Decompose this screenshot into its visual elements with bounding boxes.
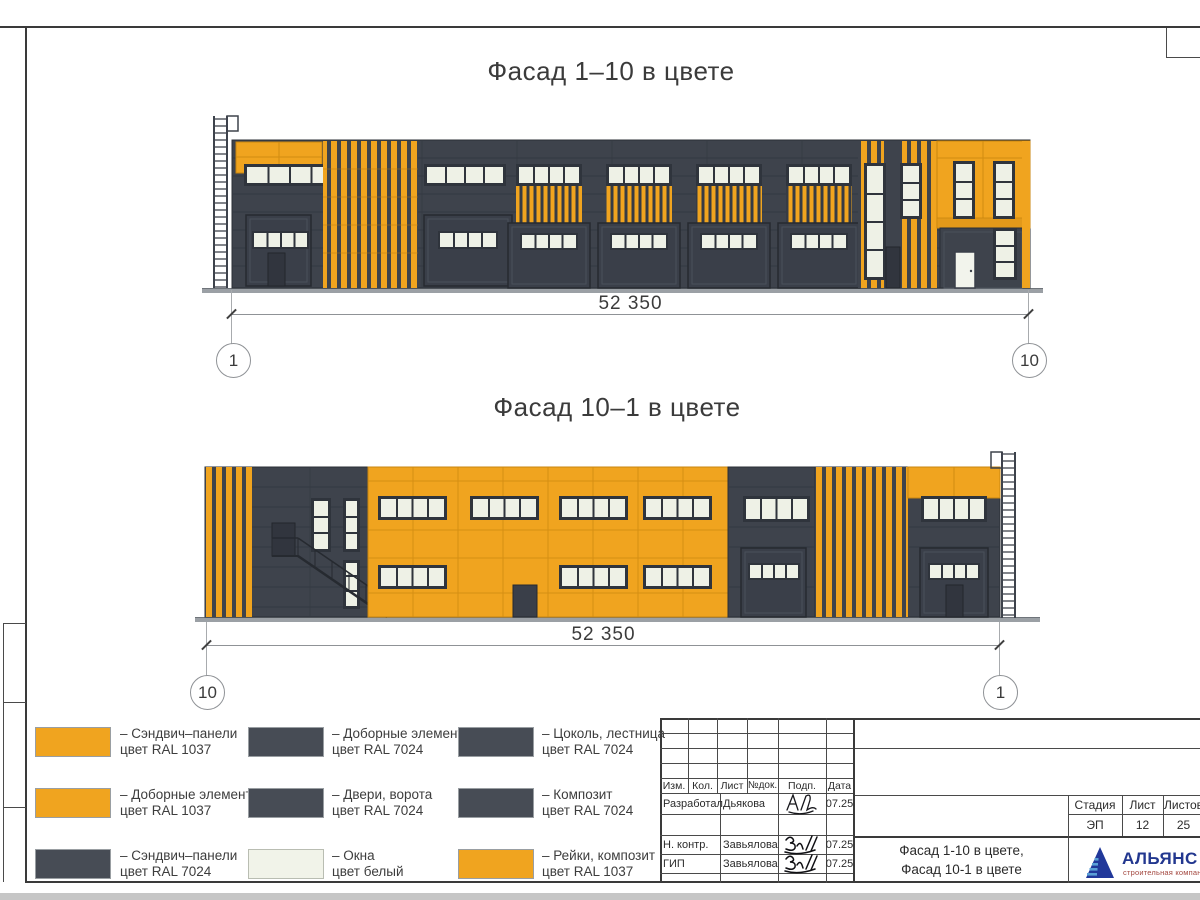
date-1: 07.25 (826, 793, 853, 814)
facade-10-1-drawing (195, 448, 1040, 628)
axis-marker-10: 10 (190, 675, 225, 710)
legend-label: – Сэндвич–панели (120, 848, 237, 865)
drawing-sheet: Фасад 1–10 в цвете Фасад 10–1 в цвете (0, 0, 1200, 893)
slat-window-section (858, 141, 937, 288)
frame-top (0, 26, 1200, 28)
legend-label: – Рейки, композит (542, 848, 655, 865)
color-swatch (248, 849, 324, 879)
margin-line-h3 (3, 807, 26, 808)
legend-label: – Цоколь, лестница (542, 726, 665, 743)
format-box-line-h (1166, 57, 1200, 58)
gate-1 (246, 215, 311, 286)
window-strip (244, 164, 336, 186)
format-box-line-v (1166, 28, 1167, 58)
margin-line-h1 (3, 623, 26, 624)
legend-label: – Сэндвич–панели (120, 726, 237, 743)
margin-line-h2 (3, 702, 26, 703)
orange-main-section (368, 467, 728, 617)
color-swatch (458, 788, 534, 818)
legend-label: – Композит (542, 787, 633, 804)
color-swatch (458, 727, 534, 757)
alliance-logo-subtext: строительная компания (1123, 868, 1200, 877)
legend-label: цвет RAL 1037 (120, 742, 237, 759)
date-3: 07.25 (826, 854, 853, 873)
axis-marker-1: 1 (216, 343, 251, 378)
sheets-value: 25 (1163, 814, 1200, 836)
sheet-value: 12 (1122, 814, 1163, 836)
dimension-value-2: 52 350 (207, 624, 1000, 646)
alliance-logo-icon (1084, 846, 1116, 880)
date-2: 07.25 (826, 835, 853, 854)
legend-label: цвет белый (332, 864, 404, 881)
role-razrabotal: Разработал (663, 793, 719, 814)
legend-label: цвет RAL 1037 (120, 803, 261, 820)
facade1-title: Фасад 1–10 в цвете (311, 56, 911, 87)
col-data: Дата (826, 778, 853, 793)
sheets-label: Листов (1163, 795, 1200, 814)
signature-1 (781, 791, 825, 815)
legend-label: цвет RAL 7024 (332, 742, 473, 759)
facade2-title: Фасад 10–1 в цвете (317, 392, 917, 423)
facade-1-10-drawing (200, 106, 1045, 301)
doc-title-line1: Фасад 1-10 в цвете, (899, 842, 1023, 861)
dimension-value-1: 52 350 (232, 293, 1029, 315)
orange-slats-block (323, 141, 418, 288)
entrance-door-white (955, 252, 975, 288)
col-ndok: №док. (747, 778, 778, 793)
color-swatch (35, 788, 111, 818)
name-dyakova: Дьякова (723, 793, 777, 814)
legend-label: цвет RAL 7024 (332, 803, 432, 820)
role-gip: ГИП (663, 854, 719, 873)
color-swatch (35, 727, 111, 757)
door-dark (513, 585, 537, 617)
stage-label: Стадия (1068, 795, 1122, 814)
signature-3 (781, 852, 825, 874)
orange-slats-block (815, 467, 908, 617)
color-swatch (248, 788, 324, 818)
legend-label: цвет RAL 7024 (120, 864, 237, 881)
role-nkontr: Н. контр. (663, 835, 719, 854)
name-zavyalova-2: Завьялова (723, 854, 777, 873)
doc-title: Фасад 1-10 в цвете, Фасад 10-1 в цвете (855, 838, 1068, 883)
doc-title-line2: Фасад 10-1 в цвете (901, 861, 1022, 880)
legend-label: цвет RAL 1037 (542, 864, 655, 881)
color-swatch (35, 849, 111, 879)
orange-end-block (937, 141, 1030, 288)
legend-label: цвет RAL 7024 (542, 742, 665, 759)
margin-line-v (3, 623, 4, 882)
legend-label: – Окна (332, 848, 404, 865)
dark-gate-section (728, 467, 815, 617)
frame-left (25, 26, 27, 883)
sheet-label: Лист (1122, 795, 1163, 814)
axis-marker-10: 10 (1012, 343, 1047, 378)
col-kol: Кол. (688, 778, 717, 793)
bay2 (424, 164, 512, 286)
col-list: Лист (717, 778, 747, 793)
name-zavyalova-1: Завьялова (723, 835, 777, 854)
legend-label: – Двери, ворота (332, 787, 432, 804)
alliance-logo-text: АЛЬЯНС (1122, 849, 1198, 869)
axis-marker-1: 1 (983, 675, 1018, 710)
legend-label: – Доборные элементы (332, 726, 473, 743)
orange-slats-left (205, 467, 252, 617)
legend-label: – Доборные элементы (120, 787, 261, 804)
legend-label: цвет RAL 7024 (542, 803, 633, 820)
color-swatch (248, 727, 324, 757)
color-swatch (458, 849, 534, 879)
stage-value: ЭП (1068, 814, 1122, 836)
col-izm: Изм. (660, 778, 688, 793)
